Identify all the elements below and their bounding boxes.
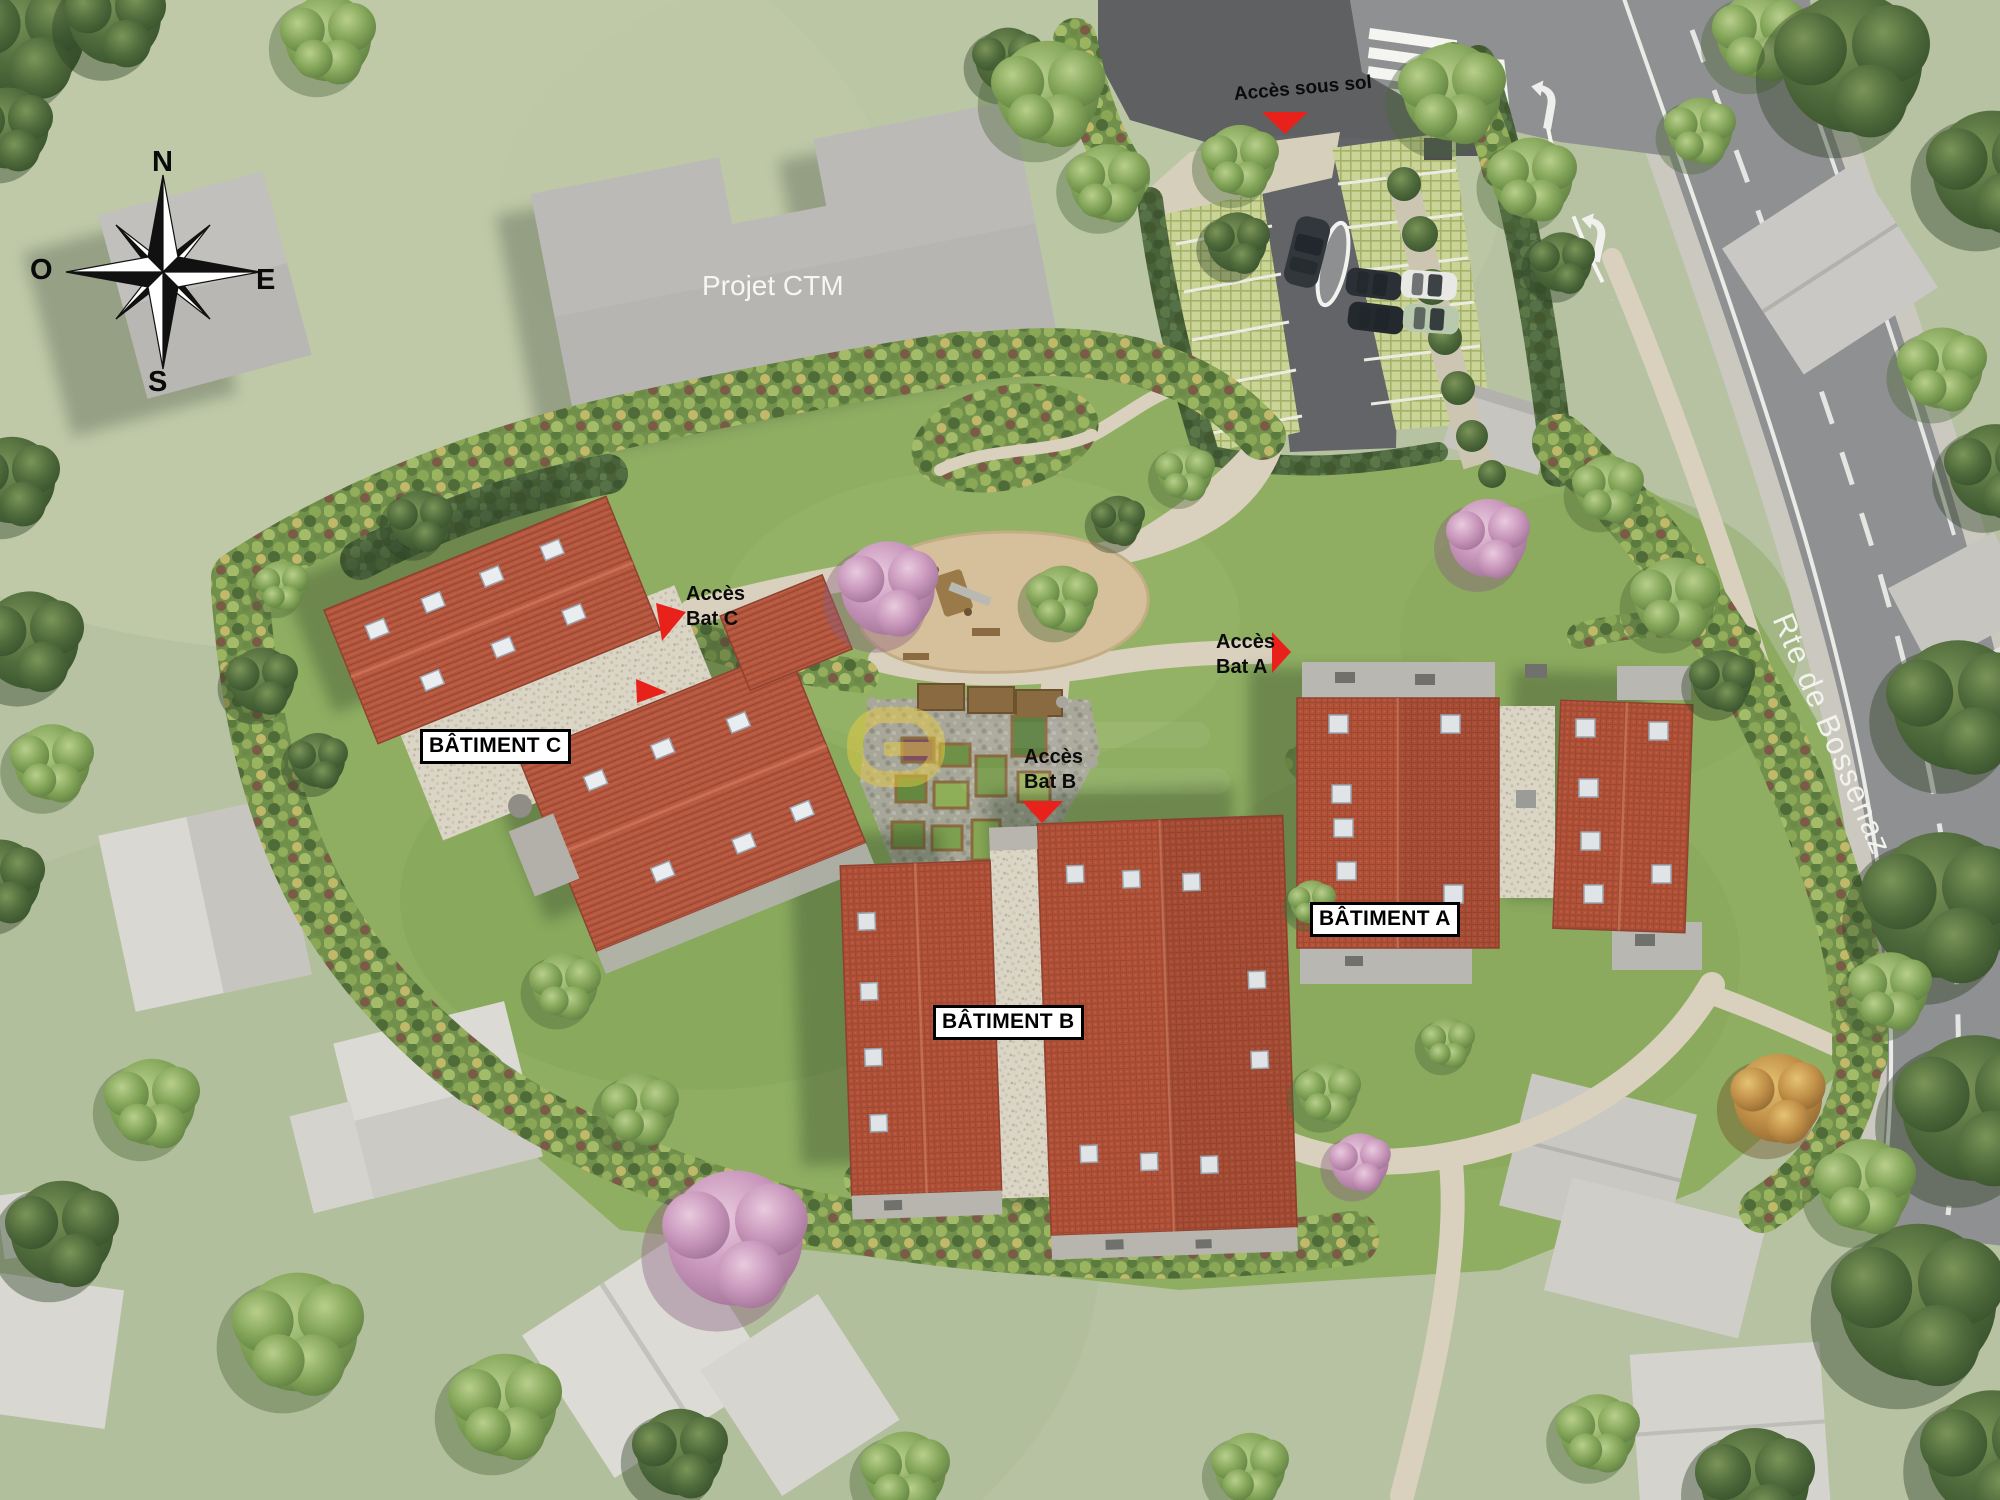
- building-b-entrance: [989, 826, 1038, 851]
- batiment-c-label: BÂTIMENT C: [420, 729, 571, 764]
- building-b: [839, 815, 1298, 1266]
- compass-west-label: O: [30, 254, 53, 287]
- projet-ctm-label: Projet CTM: [702, 270, 844, 302]
- acces-bat-a-label-line2: Bat A: [1216, 656, 1267, 678]
- bench: [972, 628, 1000, 636]
- building-a-north-terrace: [1302, 662, 1495, 700]
- compass-north-label: N: [152, 146, 173, 179]
- building-a-north-terrace-2: [1617, 666, 1691, 700]
- compass-east-label: E: [256, 264, 275, 297]
- site-plan: Accès sous sol Accès Bat C Accès Bat B A…: [0, 0, 2000, 1500]
- acces-bat-a-label-line1: Accès: [1216, 631, 1275, 653]
- compass-south-label: S: [148, 366, 167, 399]
- acces-bat-c-label-line1: Accès: [686, 583, 745, 605]
- acces-bat-b-label-line1: Accès: [1024, 746, 1083, 768]
- bench: [903, 653, 929, 660]
- acces-bat-c-label-line2: Bat C: [686, 608, 738, 630]
- batiment-a-label: BÂTIMENT A: [1310, 902, 1460, 937]
- building-a-south-terrace: [1300, 948, 1472, 984]
- batiment-b-label: BÂTIMENT B: [933, 1005, 1084, 1040]
- site-plan-rendering: [0, 0, 2000, 1500]
- acces-bat-b-label-line2: Bat B: [1024, 771, 1076, 793]
